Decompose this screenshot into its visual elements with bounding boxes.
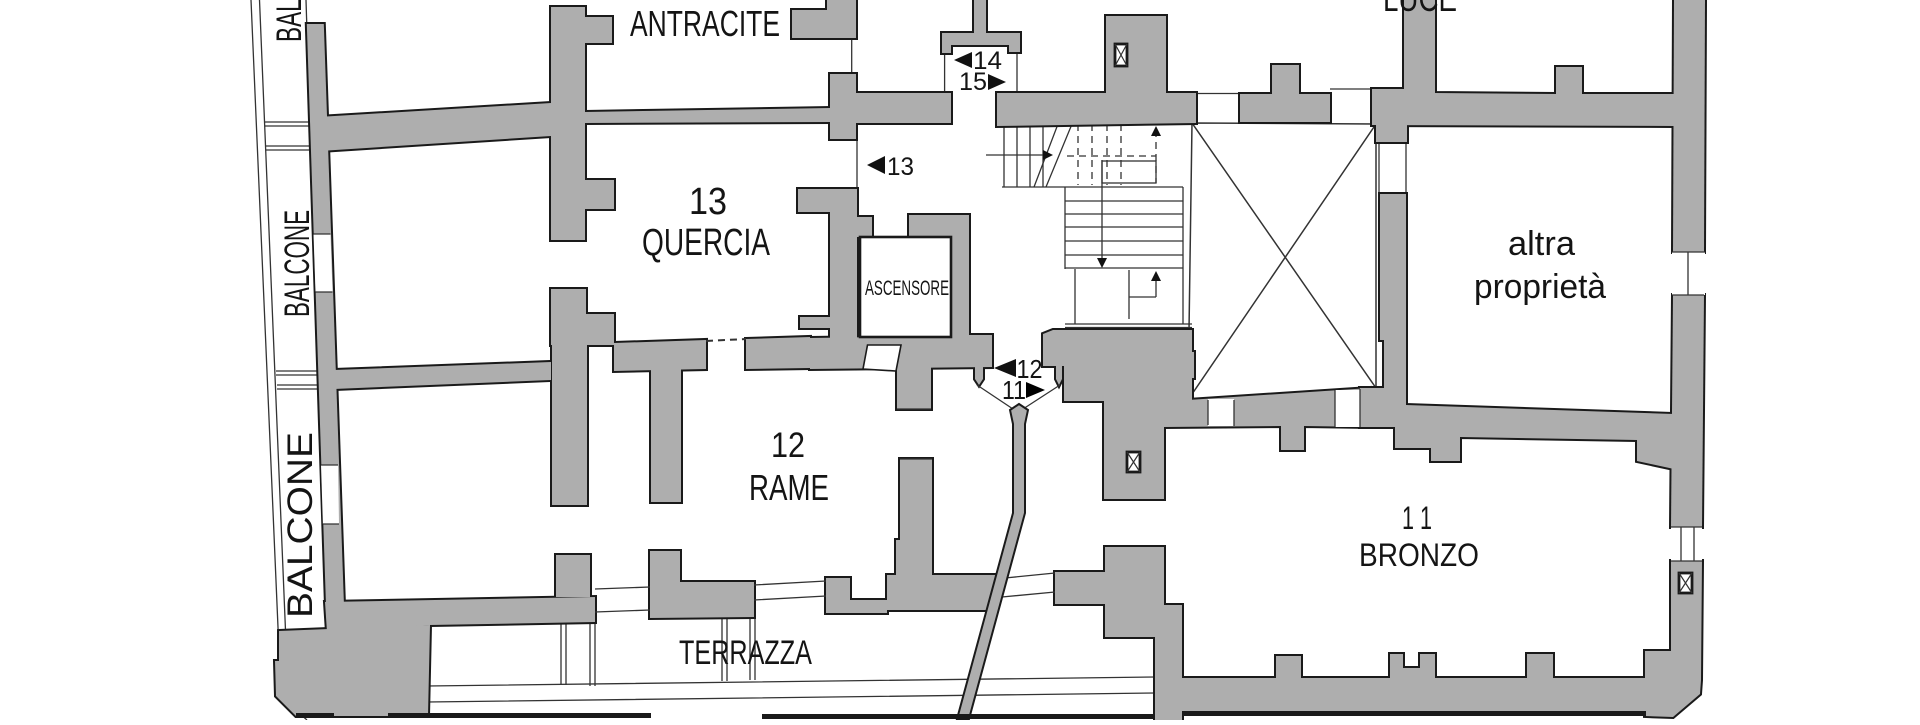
svg-text:15: 15	[959, 68, 987, 96]
svg-text:TERRAZZA: TERRAZZA	[679, 634, 812, 672]
svg-text:ANTRACITE: ANTRACITE	[630, 3, 780, 44]
svg-text:BALCONE: BALCONE	[281, 432, 320, 618]
svg-text:QUERCIA: QUERCIA	[642, 222, 770, 264]
svg-text:BALCONE: BALCONE	[278, 210, 317, 317]
svg-text:LUCE: LUCE	[1383, 0, 1457, 19]
svg-text:BALCONE: BALCONE	[270, 0, 309, 42]
svg-text:11: 11	[1002, 375, 1026, 405]
svg-text:RAME: RAME	[749, 467, 829, 508]
svg-text:proprietà: proprietà	[1474, 268, 1606, 306]
svg-text:1 1: 1 1	[1402, 500, 1432, 536]
svg-text:BRONZO: BRONZO	[1359, 537, 1479, 573]
svg-text:altra: altra	[1508, 225, 1575, 263]
svg-text:12: 12	[771, 426, 805, 465]
svg-text:13: 13	[689, 181, 727, 223]
svg-text:13: 13	[887, 153, 914, 181]
svg-text:ASCENSORE: ASCENSORE	[865, 277, 949, 300]
